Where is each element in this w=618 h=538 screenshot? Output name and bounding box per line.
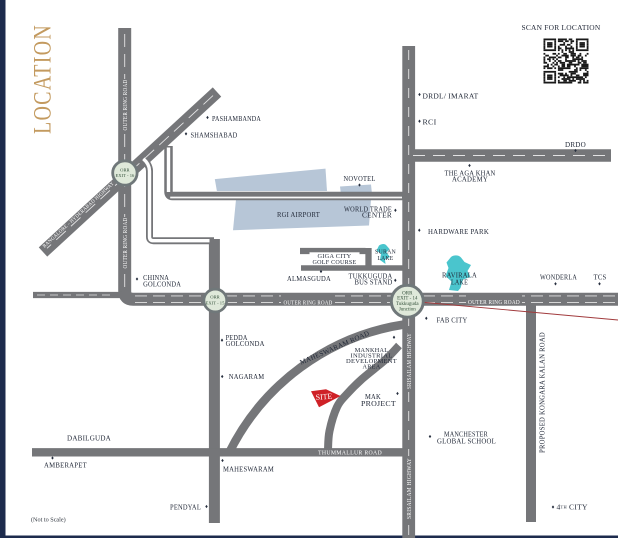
svg-text:HARDWARE PARK: HARDWARE PARK [428, 227, 489, 236]
svg-text:OUTER RING ROAD: OUTER RING ROAD [122, 79, 129, 130]
svg-text:Tukkuguda: Tukkuguda [396, 302, 419, 307]
svg-text:AREA: AREA [363, 363, 381, 370]
svg-text:OUTER RING ROAD: OUTER RING ROAD [284, 299, 333, 306]
svg-text:AMBERAPET: AMBERAPET [44, 461, 87, 470]
svg-text:PROPOSED KONGARA KALAN ROAD: PROPOSED KONGARA KALAN ROAD [540, 332, 547, 453]
svg-text:SITE: SITE [315, 392, 332, 402]
svg-text:SRISAILAM HIGHWAY: SRISAILAM HIGHWAY [406, 333, 413, 389]
svg-text:LAKE: LAKE [451, 278, 468, 287]
svg-text:ORR: ORR [120, 167, 130, 172]
svg-text:GLOBAL SCHOOL: GLOBAL SCHOOL [437, 437, 496, 446]
svg-text:LAKE: LAKE [378, 255, 394, 262]
svg-text:GIGA CITY: GIGA CITY [318, 254, 352, 260]
svg-text:NAGARAM: NAGARAM [229, 372, 264, 381]
svg-text:PASHAMBANDA: PASHAMBANDA [212, 114, 261, 123]
svg-text:PROJECT: PROJECT [361, 399, 396, 408]
svg-text:EXIT - 16: EXIT - 16 [116, 173, 135, 178]
svg-text:FAB CITY: FAB CITY [437, 316, 468, 325]
svg-text:SCAN FOR LOCATION: SCAN FOR LOCATION [522, 23, 601, 32]
svg-text:ALMASGUDA: ALMASGUDA [287, 274, 331, 283]
svg-text:OUTER RING ROAD: OUTER RING ROAD [468, 299, 520, 306]
svg-text:MAHESWARAM: MAHESWARAM [223, 465, 274, 474]
svg-text:GOLCONDA: GOLCONDA [143, 279, 181, 288]
svg-text:LOCATION: LOCATION [30, 24, 57, 134]
svg-text:OUTER RING ROAD: OUTER RING ROAD [122, 217, 129, 268]
svg-text:ACADEMY: ACADEMY [452, 174, 488, 183]
svg-text:EXIT - 15: EXIT - 15 [206, 300, 225, 305]
svg-text:WONDERLA: WONDERLA [540, 273, 577, 282]
svg-text:RCI: RCI [423, 118, 437, 127]
svg-text:DRDL/ IMARAT: DRDL/ IMARAT [423, 91, 479, 100]
svg-text:Junction: Junction [399, 307, 416, 312]
svg-text:NOVOTEL: NOVOTEL [344, 174, 376, 183]
svg-text:SHAMSHABAD: SHAMSHABAD [191, 130, 238, 139]
svg-text:RGI AIRPORT: RGI AIRPORT [277, 210, 320, 219]
svg-text:GOLF COURSE: GOLF COURSE [313, 260, 357, 266]
svg-text:EXIT - 14: EXIT - 14 [397, 297, 418, 302]
svg-text:GOLCONDA: GOLCONDA [226, 339, 265, 348]
svg-text:CENTER: CENTER [362, 211, 393, 220]
svg-text:BUS STAND: BUS STAND [355, 278, 393, 287]
svg-text:THUMMALLUR ROAD: THUMMALLUR ROAD [318, 451, 382, 457]
svg-text:TCS: TCS [594, 273, 607, 282]
svg-text:ORR: ORR [402, 291, 413, 296]
svg-text:(Not to Scale): (Not to Scale) [31, 517, 66, 524]
svg-text:ORR: ORR [210, 295, 220, 300]
svg-text:DRDO: DRDO [565, 140, 586, 149]
svg-text:SRISAILAM HIGHWAY: SRISAILAM HIGHWAY [406, 458, 413, 519]
svg-text:PENDYAL: PENDYAL [170, 503, 201, 512]
svg-text:DABILGUDA: DABILGUDA [67, 434, 111, 443]
